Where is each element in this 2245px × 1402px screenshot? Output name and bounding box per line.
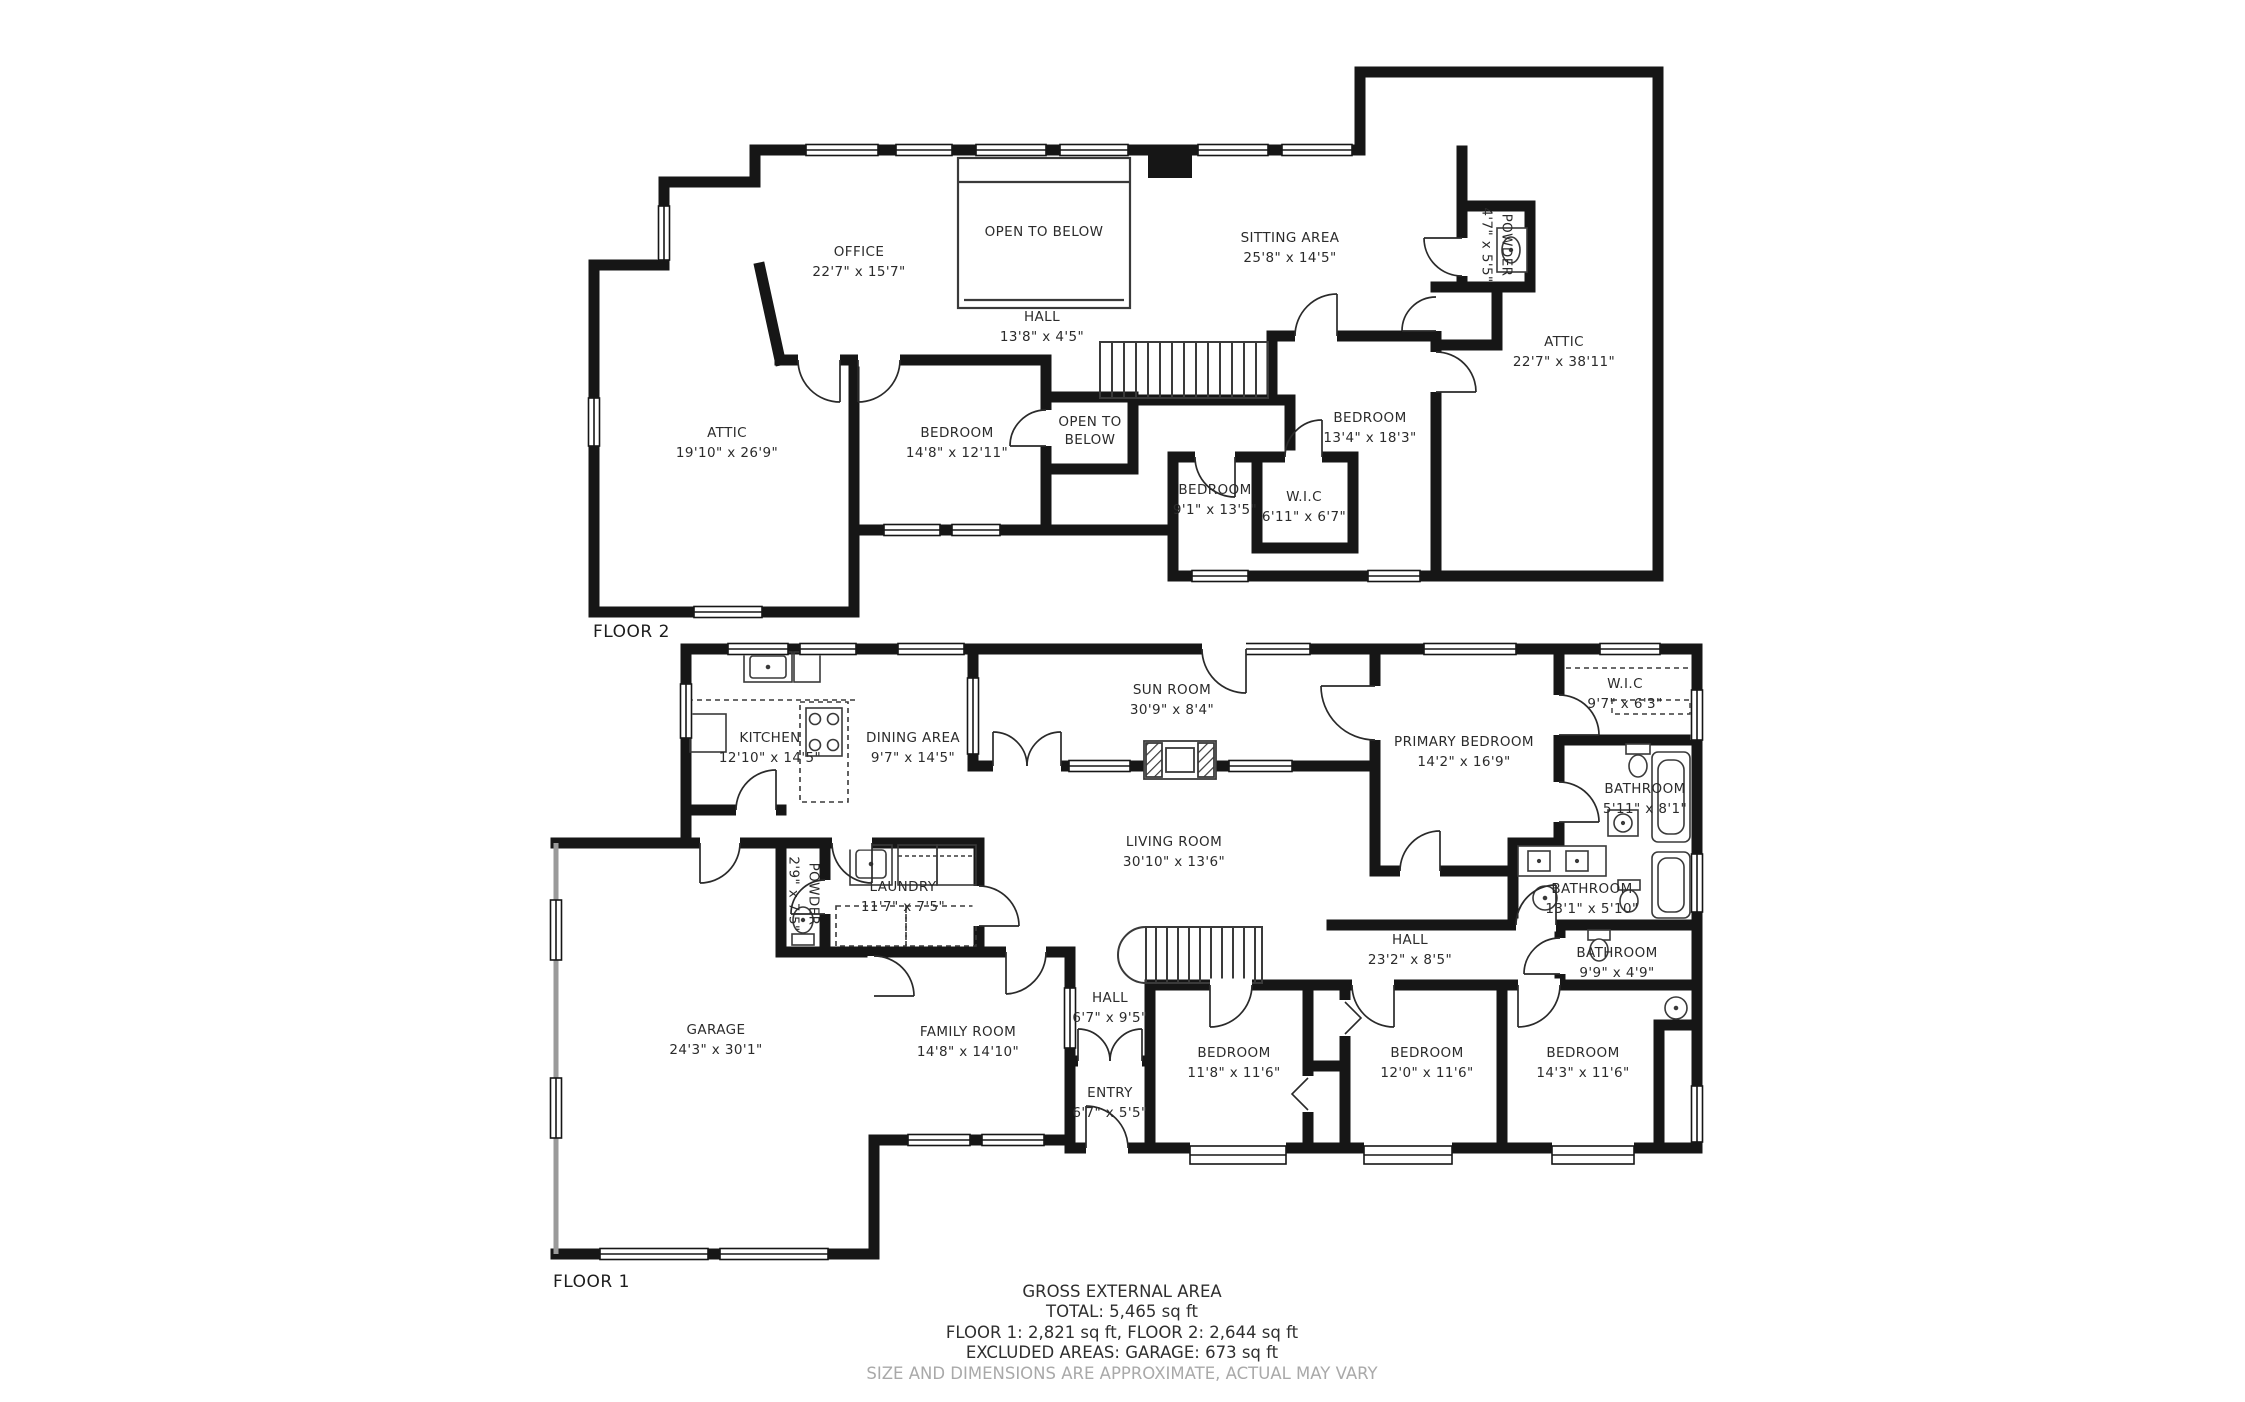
floor-plan-drawing [0, 0, 2245, 1402]
bedroom3-corner-sink-icon [1665, 997, 1687, 1019]
area-summary-floors: FLOOR 1: 2,821 sq ft, FLOOR 2: 2,644 sq … [866, 1323, 1377, 1343]
area-summary-excluded: EXCLUDED AREAS: GARAGE: 673 sq ft [866, 1343, 1377, 1363]
room-label-family-room: FAMILY ROOM 14'8" x 14'10" [917, 1022, 1019, 1063]
area-summary-disclaimer: SIZE AND DIMENSIONS ARE APPROXIMATE, ACT… [866, 1364, 1377, 1384]
room-label-sun-room: SUN ROOM 30'9" x 8'4" [1130, 680, 1214, 721]
room-label-powder-floor2: POWDER 4'7" x 5'5" [1476, 207, 1517, 282]
room-label-open-to-below-upper: OPEN TO BELOW [985, 222, 1104, 242]
room-label-garage: GARAGE 24'3" x 30'1" [669, 1020, 762, 1061]
room-label-attic-left: ATTIC 19'10" x 26'9" [676, 423, 778, 464]
room-label-bedroom-118: BEDROOM 11'8" x 11'6" [1187, 1043, 1280, 1084]
room-label-bathroom-b: BATHROOM 13'1" x 5'10" [1545, 879, 1638, 920]
room-label-hall-23: HALL 23'2" x 8'5" [1368, 930, 1452, 971]
room-label-bedroom-143: BEDROOM 14'3" x 11'6" [1536, 1043, 1629, 1084]
floor1-label: FLOOR 1 [553, 1272, 630, 1292]
room-label-entry: ENTRY 6'7" x 5'5" [1072, 1083, 1147, 1124]
room-label-wic-floor1: W.I.C 9'7" x 6'3" [1587, 674, 1662, 715]
room-label-bedroom-91: BEDROOM 9'1" x 13'5" [1173, 480, 1257, 521]
room-label-bedroom-120: BEDROOM 12'0" x 11'6" [1380, 1043, 1473, 1084]
bath-a-toilet-icon [1626, 744, 1650, 777]
room-label-bathroom-a: BATHROOM 5'11" x 8'1" [1603, 779, 1687, 820]
room-label-bedroom-148: BEDROOM 14'8" x 12'11" [906, 423, 1008, 464]
chimney [1148, 152, 1192, 178]
area-summary: GROSS EXTERNAL AREA TOTAL: 5,465 sq ft F… [866, 1282, 1377, 1384]
room-label-living-room: LIVING ROOM 30'10" x 13'6" [1123, 832, 1225, 873]
floor-plan-page: OFFICE 22'7" x 15'7" OPEN TO BELOW SITTI… [0, 0, 2245, 1402]
closet-bifold-icons [1292, 1000, 1361, 1112]
room-label-bedroom-134: BEDROOM 13'4" x 18'3" [1323, 408, 1416, 449]
room-label-laundry: LAUNDRY 11'7" x 7'5" [861, 877, 945, 918]
floor2-staircase [1100, 342, 1268, 398]
fireplace-icon [1144, 741, 1216, 779]
bath-b-vanity-icon [1518, 846, 1606, 876]
room-label-bathroom-c: BATHROOM 9'9" x 4'9" [1576, 943, 1657, 984]
room-label-wic-floor2: W.I.C 6'11" x 6'7" [1262, 487, 1346, 528]
area-summary-title: GROSS EXTERNAL AREA [866, 1282, 1377, 1302]
floor2-label: FLOOR 2 [593, 622, 670, 642]
room-label-hall-floor2: HALL 13'8" x 4'5" [1000, 307, 1084, 348]
room-label-primary-bedroom: PRIMARY BEDROOM 14'2" x 16'9" [1394, 732, 1534, 773]
floor1-staircase [1118, 927, 1262, 983]
bath-b-tub-icon [1652, 852, 1690, 918]
room-label-open-to-below-lower: OPEN TO BELOW [1042, 413, 1138, 449]
dishwasher-icon [794, 652, 820, 682]
room-label-sitting-area: SITTING AREA 25'8" x 14'5" [1241, 228, 1340, 269]
room-label-powder-floor1: POWDER 2'9" x 7'5" [783, 856, 824, 931]
area-summary-total: TOTAL: 5,465 sq ft [866, 1302, 1377, 1322]
room-label-dining-area: DINING AREA 9'7" x 14'5" [866, 728, 960, 769]
room-label-office: OFFICE 22'7" x 15'7" [812, 242, 905, 283]
room-label-kitchen: KITCHEN 12'10" x 14'5" [719, 728, 821, 769]
room-label-attic-right: ATTIC 22'7" x 38'11" [1513, 332, 1615, 373]
room-label-hall-67: HALL 6'7" x 9'5" [1072, 988, 1147, 1029]
